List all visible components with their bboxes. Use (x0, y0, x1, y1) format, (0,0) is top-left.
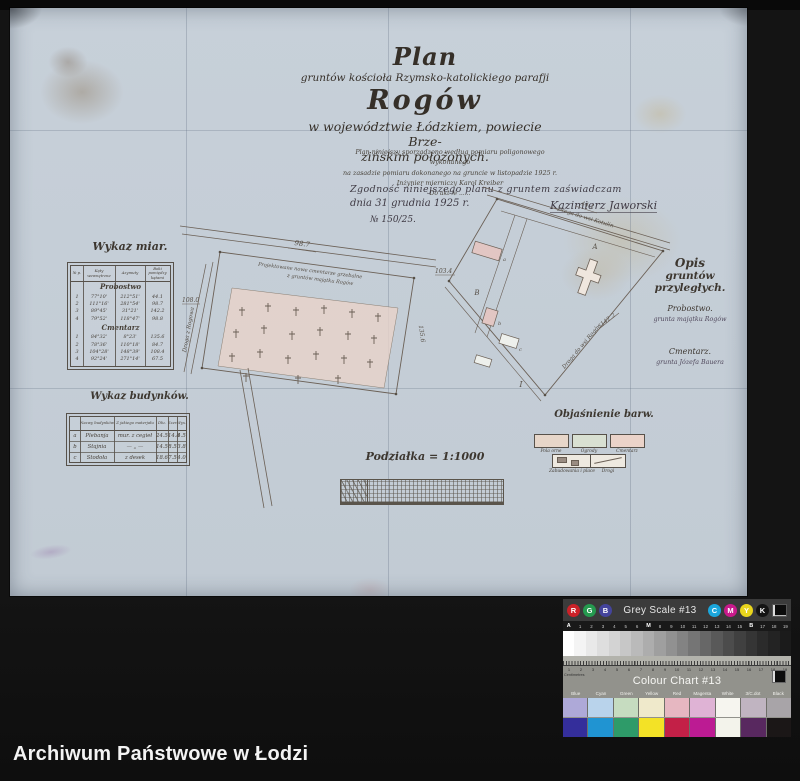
table-rule (83, 266, 84, 366)
tick-label: 2 (586, 624, 597, 629)
table-row: 389°45'31°21'142.2 (71, 308, 170, 315)
ruler-number: 15 (731, 667, 743, 672)
colour-label: 3/C.dot (740, 691, 765, 696)
tick-label: 11 (688, 624, 699, 629)
colour-label: Cyan (588, 691, 613, 696)
building-label: b (498, 321, 501, 327)
measures-table: № p.Kąty wewnętrzneAzymutyBoki pomiędzy … (70, 265, 171, 367)
edge-length-label: 108.0 (182, 297, 199, 304)
column-header: Nazwy budynków (80, 421, 114, 425)
road-mark-icon (594, 457, 622, 464)
buildings-table: Nazwy budynkówZ jakiego materjałuDłu.Sze… (69, 416, 187, 463)
boundary-point (544, 394, 547, 397)
colour-label: Yellow (639, 691, 664, 696)
cell: 14.5 (156, 444, 168, 450)
adjacent-item-text: grunta Józefa Bauera (632, 359, 748, 366)
ruler-number: 12 (695, 667, 707, 672)
colour-swatch (716, 718, 740, 737)
cell: Plebanja (80, 433, 114, 439)
column-header: Szer. (168, 421, 177, 425)
grey-step (677, 631, 688, 656)
table-rule (145, 266, 146, 366)
colour-column-labels: BlueCyanGreenYellowRedMagentaWhite3/C.do… (563, 689, 791, 697)
tick-label: 15 (734, 624, 745, 629)
column-header: Boki pomiędzy kątami (145, 267, 170, 280)
cell: 3 (71, 308, 83, 314)
cell: 78°36' (83, 342, 115, 348)
tick-label: 4 (609, 624, 620, 629)
solid-swatch-row (563, 718, 791, 737)
tick-label: 5 (620, 624, 631, 629)
map-sheet: Plan gruntów kościoła Rzymsko-katolickie… (10, 8, 747, 596)
note-line: Plan niniejszy sporządzono według pomiar… (355, 148, 544, 166)
archive-caption: Archiwum Państwowe w Łodzi (13, 743, 308, 766)
grey-step (768, 631, 779, 656)
color-swatch (610, 434, 645, 448)
colour-swatch (741, 698, 765, 717)
scale-label: Podziałka = 1:1000 (365, 450, 485, 463)
ruler-number: 17 (755, 667, 767, 672)
colour-label: Red (664, 691, 689, 696)
grey-step (631, 631, 642, 656)
cemetery-parcel-drawing: Projektowane nowe cmentarze grzebalne z … (180, 212, 436, 512)
grey-step (654, 631, 665, 656)
grey-step (723, 631, 734, 656)
color-swatch (572, 434, 607, 448)
colour-label: Black (766, 691, 791, 696)
ruler-number: 8 (647, 667, 659, 672)
table-row: 2111°16'281°54'98.7 (71, 300, 170, 307)
grey-step (643, 631, 654, 656)
building-mark-icon (571, 460, 579, 466)
title-line-4: w województwie Łódzkiem, powiecie Brze- (290, 119, 560, 149)
parcel-boundary (449, 199, 663, 395)
cell: 98.7 (145, 301, 170, 307)
k-badge: K (756, 604, 769, 617)
cell: — „ — (114, 444, 156, 450)
grey-scale-header: R G B Grey Scale #13 C M Y K (563, 599, 791, 621)
table-rule (156, 417, 157, 462)
buildings-table-title: Wykaz budynków. (87, 391, 192, 402)
label-underline (288, 248, 316, 252)
ruler-number: 5 (611, 667, 623, 672)
cell: 1 (71, 294, 83, 300)
cell: 111°16' (83, 301, 115, 307)
table-row: 479°52'118°47'98.8 (71, 315, 170, 322)
legend-label: Drogi (586, 469, 630, 474)
cell: 77°10' (83, 294, 115, 300)
region-label: B (473, 289, 479, 297)
colour-swatch (614, 718, 638, 737)
church-building (570, 256, 605, 298)
colour-swatch (690, 698, 714, 717)
boundary-point (496, 198, 499, 201)
building-c (499, 334, 519, 349)
edge-length-label: 103.4 (435, 268, 452, 275)
edge-length-label: 44.1 (579, 200, 595, 211)
cell: 2 (71, 342, 83, 348)
cell: z desek (114, 455, 156, 461)
adjacent-lands-block: Opis gruntów przyległych. Probostwo. gru… (632, 256, 748, 366)
adjacent-item-name: Probostwo. (632, 304, 748, 313)
colour-swatch (614, 698, 638, 717)
pastel-swatch-row (563, 698, 791, 717)
ruler-number: 3 (587, 667, 599, 672)
cell: 18.6 (156, 455, 168, 461)
tick-label: 12 (700, 624, 711, 629)
cell: 110°18' (115, 342, 145, 348)
road-lines (240, 368, 272, 508)
grey-step (688, 631, 699, 656)
ruler-number: 1 (563, 667, 575, 672)
cell: 104°28' (83, 349, 115, 355)
outbuilding (474, 355, 492, 367)
cell: 4 (71, 316, 83, 322)
g-badge: G (583, 604, 596, 617)
ruler-number: 9 (659, 667, 671, 672)
tick-label: 3 (597, 624, 608, 629)
y-badge: Y (740, 604, 753, 617)
table-row: 492°24'271°14'67.5 (71, 356, 170, 363)
grey-step (700, 631, 711, 656)
tick-label: 14 (723, 624, 734, 629)
cell: 98.8 (145, 316, 170, 322)
grey-step (574, 631, 585, 656)
grey-step (666, 631, 677, 656)
ruler-numbers: 12345678910111213141516171819 (563, 666, 791, 673)
cell: 271°14' (115, 356, 145, 362)
road-name-label: Droga do wsi Rogów (560, 322, 603, 372)
grey-step (746, 631, 757, 656)
cell: 3 (71, 349, 83, 355)
building-label: a (503, 257, 506, 263)
ruler-number: 11 (683, 667, 695, 672)
cell: c (70, 455, 80, 461)
cell: 118°47' (115, 316, 145, 322)
colour-swatch (716, 698, 740, 717)
cell: 92°24' (83, 356, 115, 362)
cell: Stodoła (80, 455, 114, 461)
colour-label: Magenta (690, 691, 715, 696)
grey-step (609, 631, 620, 656)
grey-step (780, 631, 791, 656)
table-rule (80, 417, 81, 462)
colour-swatch (690, 718, 714, 737)
building-a (472, 241, 502, 261)
tick-label: 8 (654, 624, 665, 629)
scale-bar-transversals (341, 480, 368, 502)
colour-swatch (767, 698, 791, 717)
cell: b (70, 444, 80, 450)
colour-swatch (588, 718, 612, 737)
building-mark-icon (557, 457, 567, 463)
ruler-number: 13 (707, 667, 719, 672)
scale-bar (340, 479, 504, 505)
edge-length-label: 98.7 (294, 239, 311, 249)
boundary-point (448, 280, 451, 283)
legend-item: Cmentarz (605, 434, 649, 454)
cell: 24.5 (156, 433, 168, 439)
road-lines (445, 287, 541, 401)
colour-label: Blue (563, 691, 588, 696)
colour-swatch (665, 718, 689, 737)
column-header: Kąty wewnętrzne (83, 269, 115, 277)
cell: a (70, 433, 80, 439)
grey-step (620, 631, 631, 656)
title-word-plan: Plan (290, 42, 560, 71)
cell: 79°52' (83, 316, 115, 322)
tick-label: 10 (677, 624, 688, 629)
adjacent-title: gruntów przyległych. (632, 270, 748, 294)
colour-chart-title: Colour Chart #13 (563, 673, 791, 689)
legend-item: Drogi (586, 454, 630, 474)
adjacent-title: Opis (632, 256, 748, 270)
boundary-point (201, 367, 204, 370)
c-badge: C (708, 604, 721, 617)
colour-swatch (767, 718, 791, 737)
cell: 212°51' (115, 294, 145, 300)
cell: 67.5 (145, 356, 170, 362)
column-header: Z jakiego materjału (114, 421, 156, 425)
cell: 84.7 (145, 342, 170, 348)
cell: 108.4 (145, 349, 170, 355)
table-rule (115, 266, 116, 366)
table-rule (177, 417, 178, 462)
tick-label: 1 (574, 624, 585, 629)
title-place-name: Rogów (290, 85, 560, 116)
grey-step (597, 631, 608, 656)
colour-label: Green (614, 691, 639, 696)
cell: 44.1 (145, 294, 170, 300)
colour-chart-card: 12345678910111213141516171819 Centimetre… (563, 656, 791, 736)
grey-step (734, 631, 745, 656)
column-header: Azymuty (115, 271, 145, 275)
region-label: A (591, 243, 597, 251)
tick-label: M (643, 623, 654, 629)
ruler-number: 10 (671, 667, 683, 672)
tick-label: 13 (711, 624, 722, 629)
section-title: Probostwo (71, 282, 170, 293)
colour-swatch (588, 698, 612, 717)
building-label: c (519, 347, 522, 353)
region-label: I (518, 380, 523, 389)
measures-table-title: Wykaz miar. (80, 240, 180, 253)
column-header: Dłu. (156, 421, 168, 425)
ruler-number: 6 (623, 667, 635, 672)
cell: 148°39' (115, 349, 145, 355)
title-line-2: gruntów kościoła Rzymsko-katolickiego pa… (290, 72, 560, 84)
tick-label: 18 (768, 624, 779, 629)
cell: 8.5 (168, 444, 177, 450)
ruler-number: 14 (719, 667, 731, 672)
table-row: 177°10'212°51'44.1 (71, 293, 170, 300)
tick-label: B (746, 623, 757, 629)
column-header: № p. (71, 271, 83, 275)
legend-title: Objaśnienie barw. (550, 409, 658, 420)
grey-scale-steps (563, 631, 791, 656)
cell: 14.8 (168, 433, 177, 439)
table-rule (168, 417, 169, 462)
grey-step (586, 631, 597, 656)
colour-swatch (665, 698, 689, 717)
grey-step (563, 631, 574, 656)
ruler (563, 656, 791, 666)
cell: 84°32' (83, 334, 115, 340)
cell: 31°21' (115, 308, 145, 314)
ruler-number: 2 (575, 667, 587, 672)
edge-length-label: 135.6 (417, 325, 426, 343)
subdivision-line (475, 215, 527, 337)
tick-label: 9 (666, 624, 677, 629)
tick-label: 6 (631, 624, 642, 629)
colour-swatch (639, 698, 663, 717)
building-b (482, 308, 498, 327)
boundary-point (395, 393, 398, 396)
tick-label: 19 (780, 624, 791, 629)
note-line: na zasadzie pomiaru dokonanego na grunci… (343, 169, 557, 177)
cell: 7.5 (168, 455, 177, 461)
table-row: 278°36'110°18'84.7 (71, 341, 170, 348)
ruler-number: 16 (743, 667, 755, 672)
ruler-number: 7 (635, 667, 647, 672)
measures-header: № p.Kąty wewnętrzneAzymutyBoki pomiędzy … (71, 266, 170, 282)
target-logo-icon (772, 604, 787, 617)
grey-step (757, 631, 768, 656)
cell: 1 (71, 334, 83, 340)
b-badge: B (599, 604, 612, 617)
color-swatch (534, 434, 569, 448)
tick-label: 17 (757, 624, 768, 629)
colour-swatch (639, 718, 663, 737)
road-lines (483, 187, 670, 250)
colour-swatch (563, 718, 587, 737)
cell: 142.2 (145, 308, 170, 314)
title-block: Plan gruntów kościoła Rzymsko-katolickie… (290, 42, 560, 164)
target-logo-icon (772, 670, 786, 683)
cell: mur. z cegieł (114, 433, 156, 439)
grey-step (711, 631, 722, 656)
tick-label: A (563, 623, 574, 629)
grey-scale-card: R G B Grey Scale #13 C M Y K A123456M891… (563, 599, 791, 656)
cell: 281°54' (115, 301, 145, 307)
cell: 2 (71, 301, 83, 307)
cell: Stajnia (80, 444, 114, 450)
archival-stamp (29, 542, 73, 562)
table-rule (114, 417, 115, 462)
boundary-point (413, 277, 416, 280)
table-row: 3104°28'148°39'108.4 (71, 348, 170, 355)
colour-swatch (563, 698, 587, 717)
ruler-unit-label: Centimetres (564, 673, 584, 677)
adjacent-item-name: Cmentarz. (632, 347, 748, 356)
road-name-label: Droga z Rogowa (182, 307, 196, 354)
grey-scale-title: Grey Scale #13 (615, 605, 705, 616)
section-title: Cmentarz (71, 323, 170, 334)
grey-scale-tick-labels: A123456M89101112131415B171819 (563, 621, 791, 631)
cell: 89°45' (83, 308, 115, 314)
cell: 4 (71, 356, 83, 362)
archival-photo: Plan gruntów kościoła Rzymsko-katolickie… (0, 0, 800, 781)
cell: 8°23' (115, 334, 145, 340)
colour-swatch (741, 718, 765, 737)
r-badge: R (567, 604, 580, 617)
ruler-number: 4 (599, 667, 611, 672)
color-swatch (590, 454, 626, 468)
cell: 135.6 (145, 334, 170, 340)
m-badge: M (724, 604, 737, 617)
boundary-point (662, 250, 665, 253)
colour-label: White (715, 691, 740, 696)
boundary-point (219, 251, 222, 254)
table-row: 184°32'8°23'135.6 (71, 334, 170, 341)
adjacent-item-text: grunta majątku Rogów (632, 316, 748, 323)
